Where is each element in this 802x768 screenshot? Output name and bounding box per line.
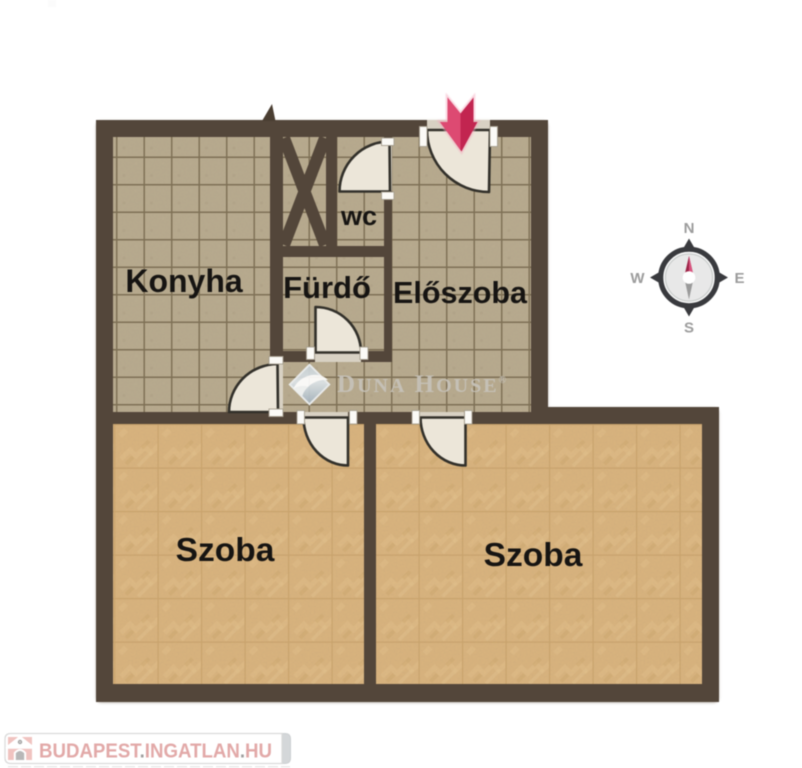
svg-text:Szoba: Szoba [176, 532, 275, 569]
svg-text:Fürdő: Fürdő [283, 270, 371, 305]
svg-text:DUNA HOUSE®: DUNA HOUSE® [337, 371, 508, 398]
svg-text:N: N [684, 220, 695, 237]
svg-text:W: W [630, 270, 645, 287]
svg-text:E: E [734, 270, 744, 287]
svg-text:Szoba: Szoba [484, 537, 583, 574]
svg-text:Előszoba: Előszoba [393, 276, 528, 310]
svg-text:BUDAPEST.INGATLAN.HU: BUDAPEST.INGATLAN.HU [39, 740, 272, 763]
svg-text:wc: wc [340, 201, 377, 231]
svg-text:Konyha: Konyha [125, 263, 243, 299]
svg-text:S: S [684, 320, 694, 337]
